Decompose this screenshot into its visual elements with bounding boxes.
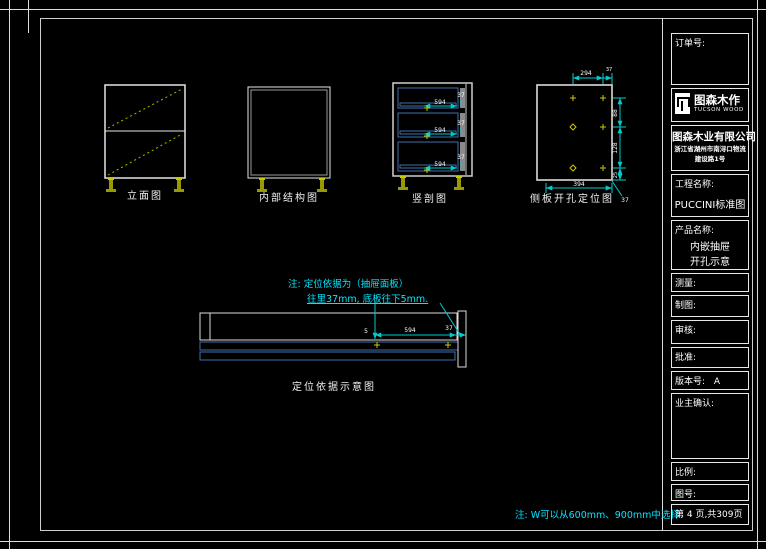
approve-label: 批准: <box>672 348 748 365</box>
company-address-line2: 建设路1号 <box>672 154 748 164</box>
cad-sheet: 594 37 594 37 594 37 <box>0 0 766 549</box>
measure-label: 测量: <box>672 274 748 291</box>
dim-label: 594 <box>404 327 416 334</box>
positioning-note-line1: 注: 定位依据为（抽屉面板） <box>288 276 408 290</box>
version-box: 版本号: A <box>671 371 749 390</box>
tucson-monogram-icon <box>675 93 690 114</box>
cabinet-outline <box>248 87 330 178</box>
drawer-box <box>398 142 458 171</box>
dim-label: 5 <box>364 328 368 335</box>
caption-section: 竖剖图 <box>412 190 448 205</box>
opening-direction-line <box>108 134 182 175</box>
caption-internal: 内部结构图 <box>259 189 319 204</box>
cabinet-leg <box>398 176 408 190</box>
drawer-boxes <box>398 88 458 171</box>
drill-hole <box>600 124 606 130</box>
side-panel-dimension-labels: 294 37 88 128 25 394 37 <box>573 67 629 204</box>
drill-hole <box>570 124 576 130</box>
drill-hole <box>600 95 606 101</box>
drawer-bottom-rail <box>200 342 458 350</box>
datum-mark <box>374 342 380 348</box>
dim-label: 37 <box>457 120 465 127</box>
basis-view: 5 594 37 <box>200 303 466 367</box>
positioning-note-line2: 往里37mm, 底板往下5mm. <box>307 291 428 305</box>
company-box: 图森木业有限公司 浙江省湖州市南浔口物流 建设路1号 <box>671 125 749 171</box>
section-view: 594 37 594 37 594 37 <box>393 83 472 190</box>
scale-box: 比例: <box>671 462 749 481</box>
audit-label: 审核: <box>672 321 748 338</box>
page-info-box: 第 4 页,共309页 <box>671 504 749 525</box>
drill-hole <box>570 95 576 101</box>
project-value: PUCCINI标准图 <box>672 196 748 211</box>
datum-mark <box>445 342 451 348</box>
draft-label: 制图: <box>672 296 748 313</box>
version-value: A <box>714 377 720 387</box>
drawer-box <box>398 113 458 137</box>
scale-label: 比例: <box>672 463 748 480</box>
owner-confirm-label: 业主确认: <box>672 394 748 411</box>
opening-direction-line <box>108 89 182 128</box>
dim-label: 37 <box>457 92 465 99</box>
dim-label: 37 <box>621 197 629 204</box>
dim-label: 294 <box>580 70 592 77</box>
order-number-label: 订单号: <box>672 34 748 51</box>
dim-label: 394 <box>573 181 585 188</box>
dim-label: 88 <box>612 109 619 117</box>
width-option-note: 注: W可以从600mm、900mm中选择. <box>515 507 683 521</box>
project-box: 工程名称: PUCCINI标准图 <box>671 174 749 217</box>
company-address-line1: 浙江省湖州市南浔口物流 <box>672 144 748 154</box>
cabinet-leg <box>174 178 184 192</box>
basis-dimension-lines <box>375 303 466 339</box>
page-info: 第 4 页,共309页 <box>672 505 748 522</box>
figure-number-box: 图号: <box>671 484 749 501</box>
product-name-line1: 内嵌抽屉 <box>672 238 748 253</box>
drawer-bottom-rail <box>200 352 455 360</box>
dim-label: 594 <box>434 161 446 168</box>
approve-box: 批准: <box>671 347 749 368</box>
logo-box: 图森木作 TUCSON WOOD <box>671 88 749 122</box>
caption-elevation: 立面图 <box>127 187 163 202</box>
caption-side-panel: 侧板开孔定位图 <box>530 190 614 205</box>
internal-structure-view <box>248 87 330 192</box>
dim-label: 594 <box>434 99 446 106</box>
dim-label: 37 <box>606 67 612 73</box>
cabinet-inner-outline <box>251 90 327 175</box>
company-name: 图森木业有限公司 <box>672 129 748 144</box>
brand-name: 图森木作 <box>694 94 744 107</box>
draft-box: 制图: <box>671 295 749 317</box>
drawing-linework: 594 37 594 37 594 37 <box>0 0 766 549</box>
bottom-panel-section <box>200 313 457 340</box>
audit-box: 审核: <box>671 320 749 344</box>
brand-logo: 图森木作 TUCSON WOOD <box>672 89 748 118</box>
owner-confirm-box: 业主确认: <box>671 393 749 459</box>
side-panel-view: 294 37 88 128 25 394 37 <box>537 67 629 204</box>
elevation-view <box>105 85 185 192</box>
drawer-front-section <box>458 311 466 367</box>
caption-basis: 定位依据示意图 <box>292 378 376 393</box>
drill-hole <box>600 165 606 171</box>
order-number-box: 订单号: <box>671 33 749 85</box>
dim-label: 25 <box>613 172 619 178</box>
product-label: 产品名称: <box>672 221 748 238</box>
product-box: 产品名称: 内嵌抽屉 开孔示意 <box>671 220 749 270</box>
dim-label: 37 <box>457 154 465 161</box>
product-name-line2: 开孔示意 <box>672 253 748 268</box>
measure-box: 测量: <box>671 273 749 292</box>
project-label: 工程名称: <box>672 175 748 192</box>
figure-number-label: 图号: <box>672 485 748 502</box>
dim-label: 594 <box>434 127 446 134</box>
brand-name-en: TUCSON WOOD <box>694 107 744 113</box>
cabinet-leg <box>454 176 464 190</box>
basis-dimension-labels: 5 594 37 <box>364 325 453 335</box>
dim-label: 128 <box>612 142 619 154</box>
side-panel-outline <box>537 85 612 180</box>
dim-label: 37 <box>445 325 453 332</box>
cabinet-leg <box>106 178 116 192</box>
version-label: 版本号: <box>675 377 705 387</box>
drill-hole <box>570 165 576 171</box>
drawer-box <box>398 88 458 108</box>
